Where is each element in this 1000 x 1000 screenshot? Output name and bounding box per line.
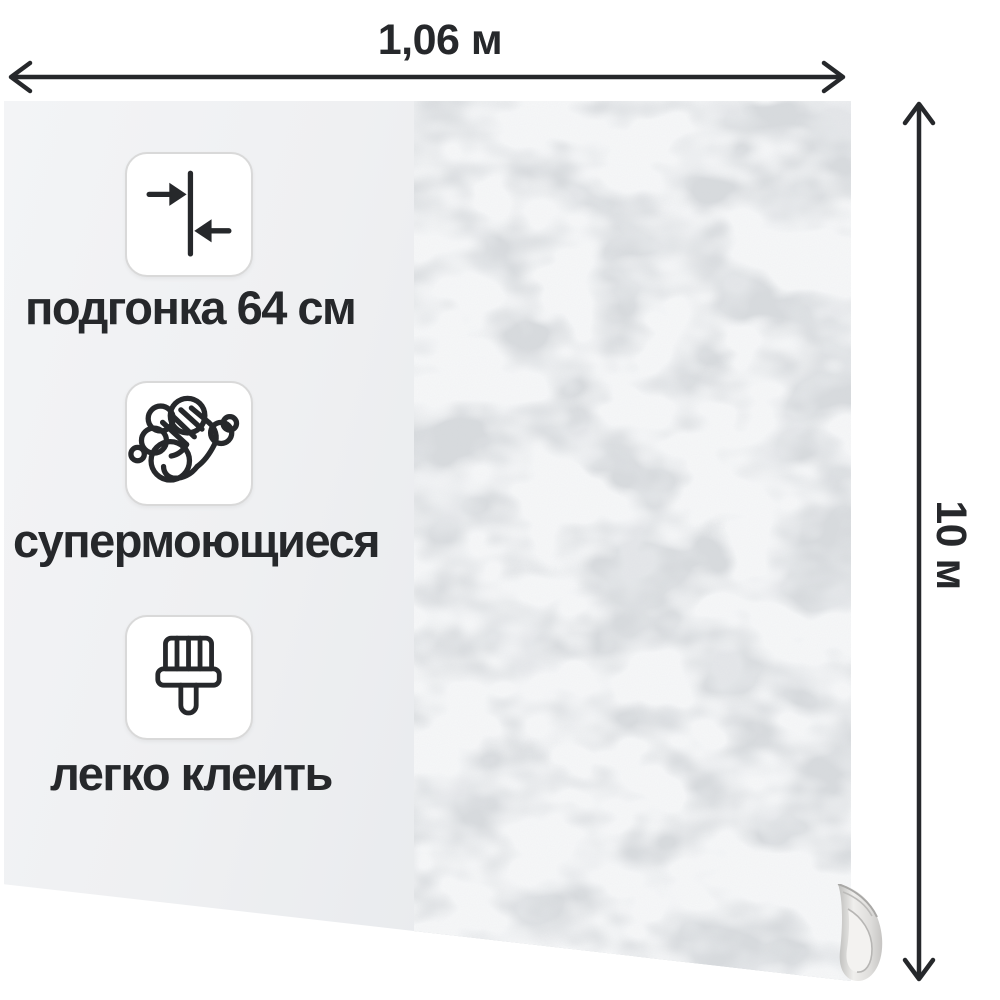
wallpaper-product-image: 1,06 м 10 м подгонка 64 см [0, 0, 1000, 1000]
plaster-texture [414, 101, 851, 981]
width-dimension-label: 1,06 м [290, 16, 590, 65]
rolled-corner [836, 884, 890, 984]
feature-card-pattern-match [125, 152, 253, 277]
length-dimension-arrow [899, 100, 943, 984]
feature-card-easy-glue [125, 615, 253, 740]
feature-label-pattern-match: подгонка 64 см [25, 283, 355, 333]
washable-hand-bubbles-icon [127, 383, 251, 504]
feature-label-washable: супермоющиеся [13, 516, 379, 566]
wallpaper-textured-side [414, 101, 851, 981]
pattern-match-offset-icon [127, 154, 251, 275]
glue-brush-icon [127, 617, 251, 738]
feature-card-washable [125, 381, 253, 506]
feature-label-easy-glue: легко клеить [50, 749, 332, 799]
width-dimension-arrow [6, 59, 848, 95]
